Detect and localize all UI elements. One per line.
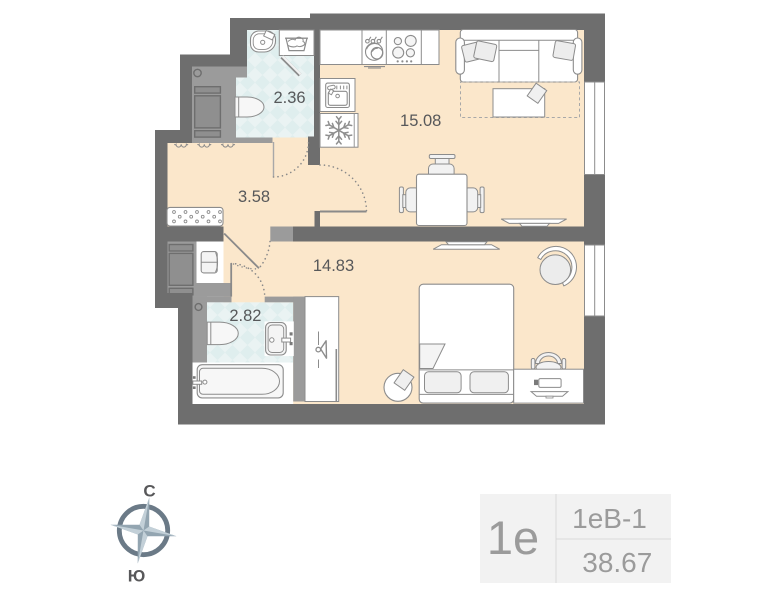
svg-text:14.83: 14.83 xyxy=(313,257,354,275)
svg-text:2.82: 2.82 xyxy=(229,307,261,325)
svg-text:3.58: 3.58 xyxy=(238,188,270,206)
svg-text:38.67: 38.67 xyxy=(582,547,652,578)
svg-text:Ю: Ю xyxy=(128,567,146,586)
svg-text:2.36: 2.36 xyxy=(273,89,305,107)
svg-text:15.08: 15.08 xyxy=(400,112,441,130)
svg-text:1еВ-1: 1еВ-1 xyxy=(572,503,647,534)
svg-text:С: С xyxy=(143,482,155,501)
svg-text:1е: 1е xyxy=(487,511,539,564)
